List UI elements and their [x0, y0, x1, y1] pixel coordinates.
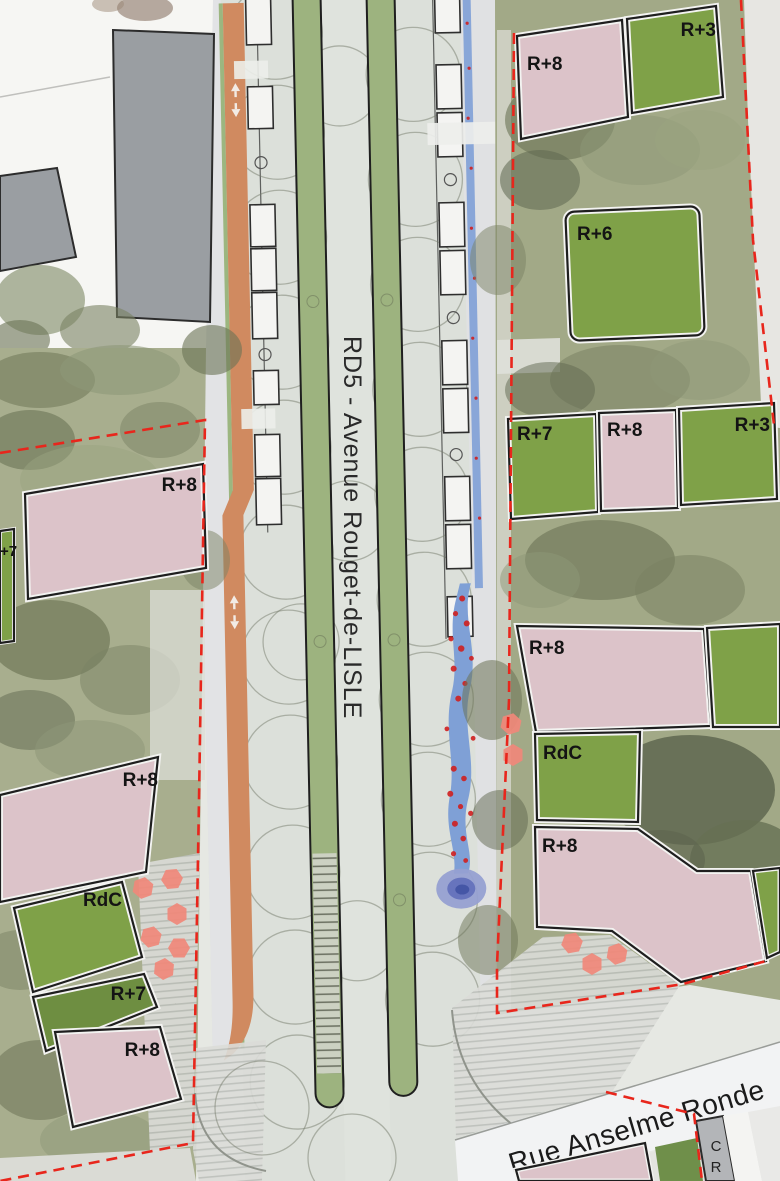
building-label: R+7: [517, 424, 552, 445]
building-r8-northeast: [517, 20, 628, 139]
building-label: R+3: [681, 20, 716, 41]
transit-lane-textured-segment: [313, 853, 342, 1073]
corner-building-label: CR: [708, 1138, 725, 1180]
building-label: R+8: [162, 475, 197, 496]
pedestrian-crossing: [427, 121, 505, 145]
building-label: R+8: [527, 54, 562, 75]
site-plan-canvas[interactable]: R+8 +7 R+8 RdC R+7 R+8: [0, 0, 780, 1181]
street-label-rd5: RD5 - Avenue Rouget-de-LISLE: [338, 336, 366, 719]
building-label: R+8: [607, 420, 642, 441]
building-label: RdC: [83, 890, 122, 911]
building-label: R+6: [577, 224, 612, 245]
building-label: R+7: [111, 984, 146, 1005]
existing-building-large: [113, 30, 214, 322]
building-green-east-edge: [707, 624, 780, 727]
building-label: R+8: [542, 836, 577, 857]
building-label: RdC: [543, 743, 582, 764]
building-label: +7: [0, 543, 17, 560]
building-label: R+8: [123, 770, 158, 791]
building-label: R+8: [125, 1040, 160, 1061]
building-label: R+3: [735, 415, 770, 436]
building-label: R+8: [529, 638, 564, 659]
site-plan-svg: R+8 +7 R+8 RdC R+7 R+8: [0, 0, 780, 1181]
